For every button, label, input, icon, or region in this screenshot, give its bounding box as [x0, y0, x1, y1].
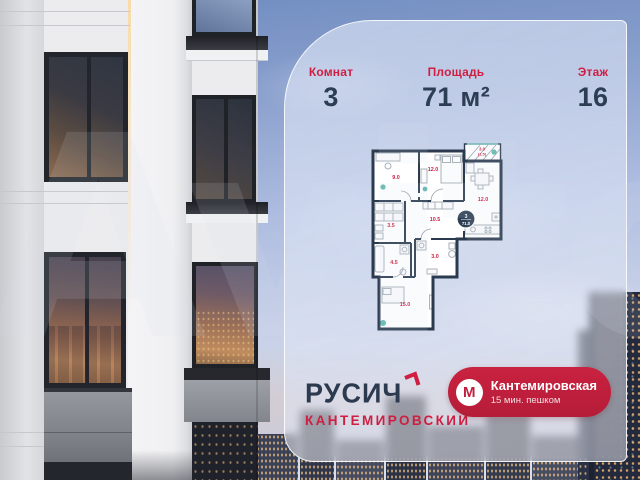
room-area-label: 3.5: [387, 223, 395, 229]
facade-shadow-band: [44, 462, 132, 480]
room-area-label: 9.0: [392, 175, 400, 181]
plan-total-badge: 3 71.0: [457, 210, 475, 228]
metro-text: Кантемировская 15 мин. пешком: [491, 378, 597, 406]
room-area-coef-label: (1.5): [478, 152, 487, 157]
room-area-label: 4.5: [390, 260, 398, 266]
room-area-label: 12.0: [478, 197, 489, 203]
facade-groove: [0, 432, 44, 433]
floorplan: 9.0 12.0 3.0 (1.5) 12.0 10.5 3.5 3.0 4.5…: [367, 139, 523, 339]
stat-area: Площадь 71 м²: [411, 65, 501, 113]
room-area-label: 10.5: [430, 217, 441, 223]
window-mullion: [224, 99, 228, 199]
window-city-lights: [196, 310, 254, 364]
badge-rooms: 3: [465, 214, 468, 220]
metro-icon: М: [456, 379, 483, 406]
listing-promo-image: Комнат 3 Площадь 71 м² Этаж 16: [0, 0, 640, 480]
stat-label: Площадь: [411, 65, 501, 79]
stat-label: Комнат: [291, 65, 371, 79]
window-city-reflection: [49, 326, 121, 383]
facade-groove: [0, 203, 128, 204]
facade-window-lower-left: [44, 252, 126, 388]
panel-seam: [44, 432, 132, 433]
room-area-label: 12.0: [428, 167, 439, 173]
facade-groove: [0, 25, 130, 26]
facade-wall-left: [0, 0, 45, 480]
facade-balcony-panel: [44, 388, 132, 462]
info-panel: Комнат 3 Площадь 71 м² Этаж 16: [284, 20, 627, 462]
room-area-label: 15.0: [400, 302, 411, 308]
facade-edge-shadow: [256, 0, 258, 480]
room-area-label: 3.0: [431, 254, 439, 260]
facade-pillar: [128, 0, 192, 480]
facade-window-top-right: [192, 0, 256, 36]
facade-window-mid-right: [192, 95, 256, 203]
brand-logo: РУСИЧ КАНТЕМИРОВСКИЙ: [305, 371, 471, 428]
metro-station: Кантемировская: [491, 378, 597, 393]
stat-value: 3: [291, 82, 371, 113]
badge-area: 71.0: [462, 221, 471, 226]
facade-lit-edge: [128, 0, 131, 320]
brand-project-name: КАНТЕМИРОВСКИЙ: [305, 413, 471, 428]
facade-window-upper-left: [44, 52, 128, 182]
facade-window-bottom-right: [192, 422, 258, 480]
stat-floor: Этаж 16: [558, 65, 628, 113]
brand-corner-icon: [404, 371, 421, 393]
brand-name: РУСИЧ: [305, 377, 402, 409]
stat-rooms: Комнат 3: [291, 65, 371, 113]
facade-window-lower-right: [192, 262, 258, 368]
metro-walk-time: 15 мин. пешком: [491, 395, 597, 406]
window-mullion: [87, 57, 91, 177]
stat-label: Этаж: [558, 65, 628, 79]
metro-badge: М Кантемировская 15 мин. пешком: [448, 367, 611, 417]
stat-value: 16: [558, 82, 628, 113]
facade-photo: [0, 0, 258, 480]
facade-groove: [0, 191, 128, 192]
facade-groove: [0, 11, 130, 12]
facade-shadow: [128, 450, 192, 480]
facade-groove: [0, 446, 44, 447]
stat-value: 71 м²: [411, 82, 501, 113]
